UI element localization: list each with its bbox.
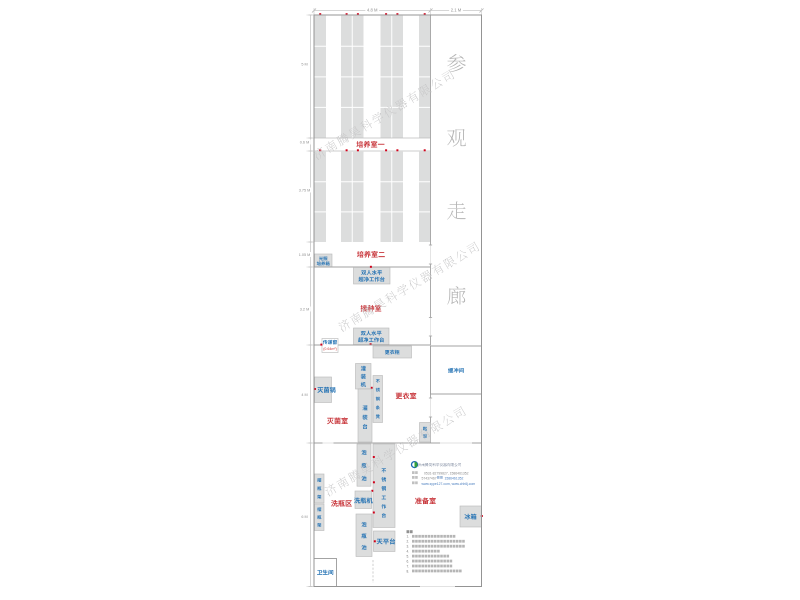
svg-text:2.: 2. — [407, 540, 410, 544]
svg-text:0531-82799827, 1586461352: 0531-82799827, 1586461352 — [424, 472, 469, 476]
svg-text:www.sype127.com, www.chh6j.com: www.sype127.com, www.chh6j.com — [422, 482, 476, 486]
svg-text:4 M: 4 M — [301, 393, 307, 397]
svg-text:3.2 M: 3.2 M — [300, 307, 310, 311]
svg-text:7.: 7. — [407, 564, 410, 568]
svg-text:5 M: 5 M — [301, 62, 307, 66]
svg-text:5.: 5. — [407, 554, 410, 558]
svg-text:1.: 1. — [407, 535, 410, 539]
svg-text:3.75 M: 3.75 M — [299, 188, 311, 192]
svg-text:57437467: 57437467 — [422, 476, 437, 480]
svg-text:1.05 M: 1.05 M — [299, 253, 311, 257]
svg-text:1586461352: 1586461352 — [445, 476, 464, 480]
svg-text:6 M: 6 M — [301, 515, 307, 519]
svg-text:4.: 4. — [407, 550, 410, 554]
svg-text:3.: 3. — [407, 545, 410, 549]
svg-text:2.1 M: 2.1 M — [451, 8, 462, 13]
svg-text:4.8 M: 4.8 M — [367, 8, 378, 13]
svg-text:0.6 M: 0.6 M — [300, 140, 310, 144]
svg-text:(0.64m²): (0.64m²) — [323, 347, 337, 351]
svg-text:8.: 8. — [407, 569, 410, 573]
svg-text:6.: 6. — [407, 559, 410, 563]
